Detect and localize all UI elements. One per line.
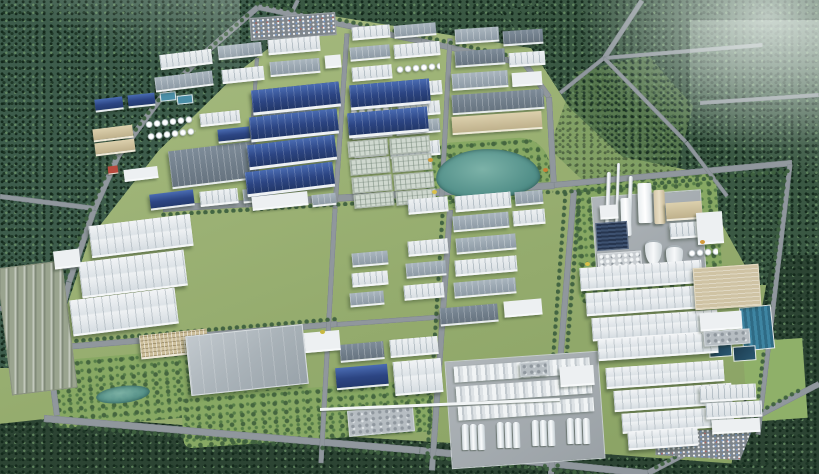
- tank-silo-4: [497, 422, 505, 448]
- hall-dark-c2: [503, 29, 544, 47]
- shrub-orange-2: [543, 168, 548, 172]
- tank-silo-2: [470, 424, 478, 450]
- shed-small-a7: [324, 54, 341, 68]
- pool-blue-2: [177, 94, 194, 105]
- pool-blue-1: [160, 91, 177, 102]
- shed-white-e12: [503, 298, 542, 317]
- shed-white-east-3: [712, 418, 761, 434]
- tank-silo-6: [513, 422, 521, 448]
- shrub-orange-1: [428, 158, 433, 162]
- scene-canvas: [0, 0, 819, 474]
- tank-silo-8: [540, 420, 548, 446]
- shed-white-east-2: [706, 401, 763, 420]
- tank-silo-9: [548, 420, 556, 446]
- tank-silo-10: [567, 418, 575, 444]
- tank-silo-1: [462, 424, 470, 450]
- process-tower-tan: [653, 190, 665, 224]
- factory-slate-c1: [455, 26, 500, 44]
- shrub-orange-3: [700, 240, 705, 244]
- shed-slate-d16: [311, 193, 336, 207]
- tank-silo-12: [583, 418, 591, 444]
- tank-silo-11: [575, 418, 583, 444]
- plant-equip-h6: [520, 361, 549, 377]
- tank-silo-7: [532, 420, 540, 446]
- factory-white-c4: [509, 51, 546, 67]
- shed-white-c8: [512, 71, 543, 87]
- rooftop-equip-east: [704, 328, 751, 346]
- megabuilding-gray: [185, 324, 309, 396]
- factory-slate-g8: [349, 291, 384, 308]
- process-tower-1: [637, 183, 652, 223]
- tank-silo-5: [505, 422, 513, 448]
- hall-striped-g4: [393, 358, 444, 396]
- plant-dark-panels: [595, 221, 629, 251]
- container-red-a16: [108, 165, 119, 174]
- plant-office-white: [600, 204, 619, 219]
- shed-white-nw: [53, 248, 81, 269]
- tank-silo-3: [478, 424, 486, 450]
- shed-blue-g3: [335, 364, 389, 390]
- shrub-yellow-3: [320, 330, 325, 334]
- factory-white-e4: [512, 209, 545, 227]
- plant-office-h5: [559, 365, 594, 387]
- building-tan-east: [693, 264, 762, 311]
- factory-slate-e2: [514, 190, 543, 206]
- shed-white-east-1: [700, 384, 757, 403]
- shrub-yellow-2: [585, 262, 590, 266]
- shrub-yellow-1: [432, 190, 437, 194]
- water-basin-dark-2: [733, 345, 757, 362]
- hall-dark-g1: [339, 341, 384, 363]
